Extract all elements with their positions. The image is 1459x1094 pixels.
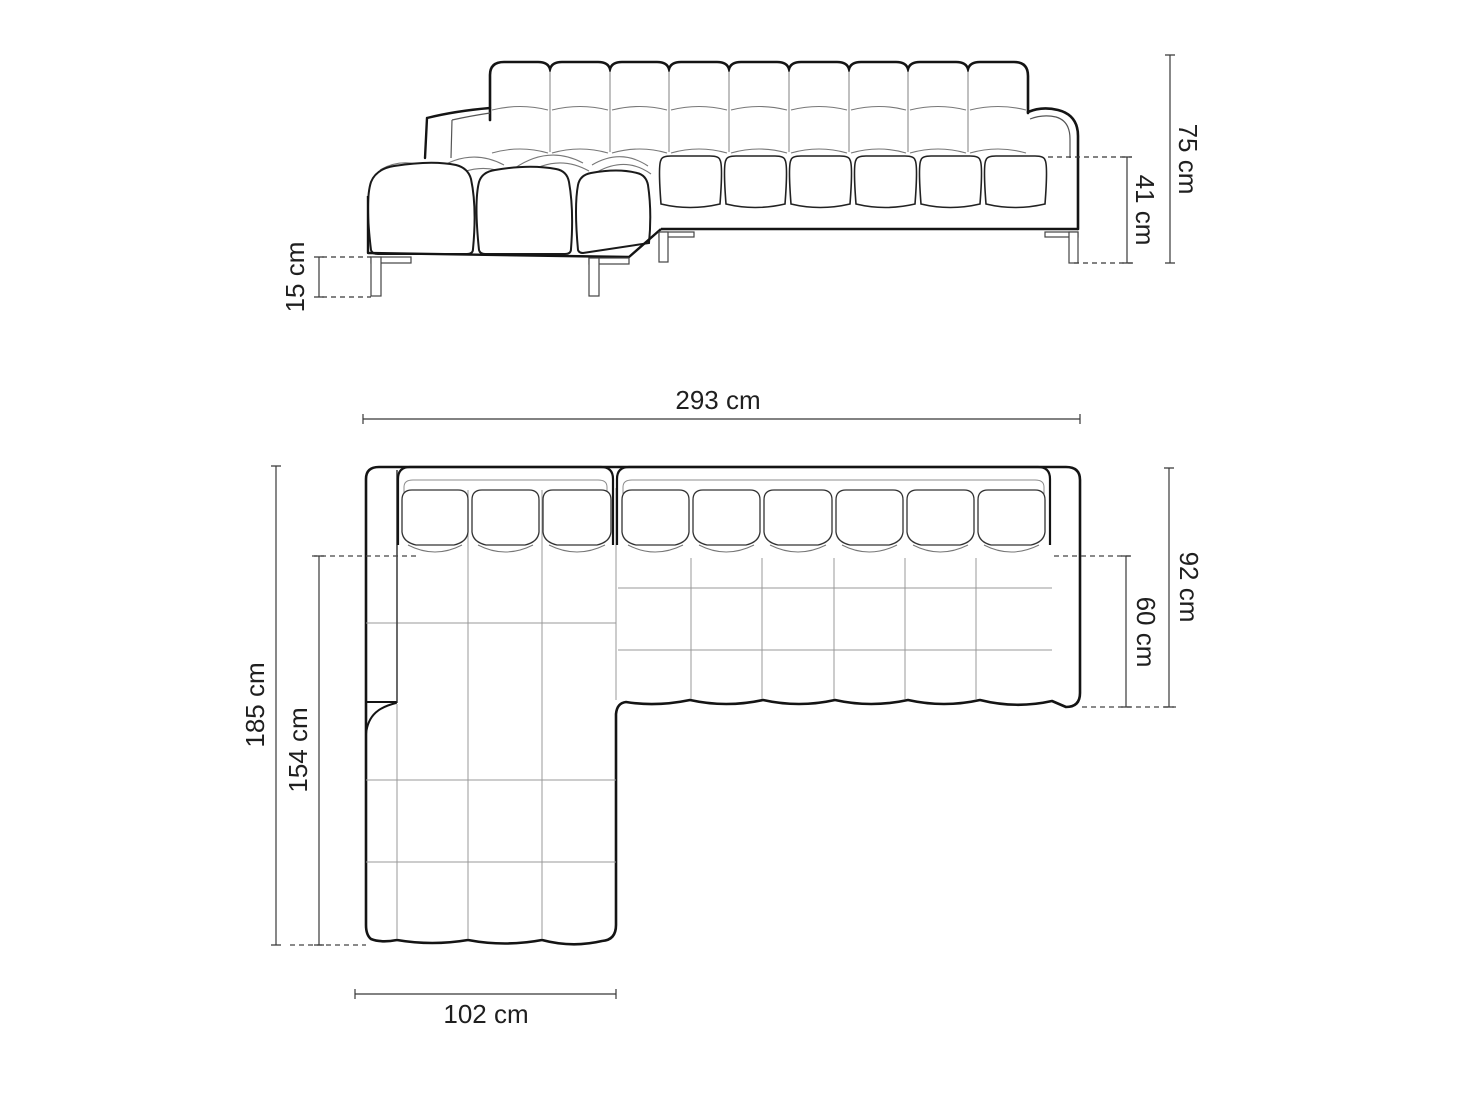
front-left-armrest [425, 108, 490, 158]
dim-leg-height-15 [314, 257, 371, 297]
front-legs [371, 232, 1078, 296]
plan-back-cushions [402, 490, 1045, 552]
dim-chaise-width-102 [355, 989, 616, 999]
front-backrest [490, 62, 1028, 153]
front-leg-height-label: 15 cm [280, 242, 310, 313]
dim-chaise-inner-depth-154 [314, 556, 324, 945]
dim-seat-depth-60 [1121, 556, 1131, 707]
top-plan-view: 293 cm 92 cm 60 cm 185 cm 154 cm 102 cm [240, 385, 1204, 1029]
plan-seat-depth-label: 60 cm [1131, 597, 1161, 668]
front-seat-height-label: 41 cm [1130, 175, 1160, 246]
front-elevation-view: 75 cm 41 cm 15 cm [280, 55, 1203, 312]
dim-total-depth-92 [1164, 468, 1174, 707]
diagram-canvas: 75 cm 41 cm 15 cm [0, 0, 1459, 1094]
plan-total-depth-label: 92 cm [1174, 552, 1204, 623]
front-total-height-label: 75 cm [1173, 124, 1203, 195]
plan-chaise-depth-label: 185 cm [240, 662, 270, 747]
front-chaise-cushions [368, 163, 650, 254]
sofa-dimension-drawing: 75 cm 41 cm 15 cm [0, 0, 1459, 1094]
plan-chaise-width-label: 102 cm [443, 999, 528, 1029]
dim-seat-height-41 [1048, 157, 1133, 263]
plan-total-width-label: 293 cm [675, 385, 760, 415]
plan-chaise-inner-depth-label: 154 cm [283, 707, 313, 792]
dim-total-width-293 [363, 414, 1080, 424]
front-seat-cushions-right [660, 156, 1047, 208]
dim-chaise-depth-185 [271, 466, 281, 945]
